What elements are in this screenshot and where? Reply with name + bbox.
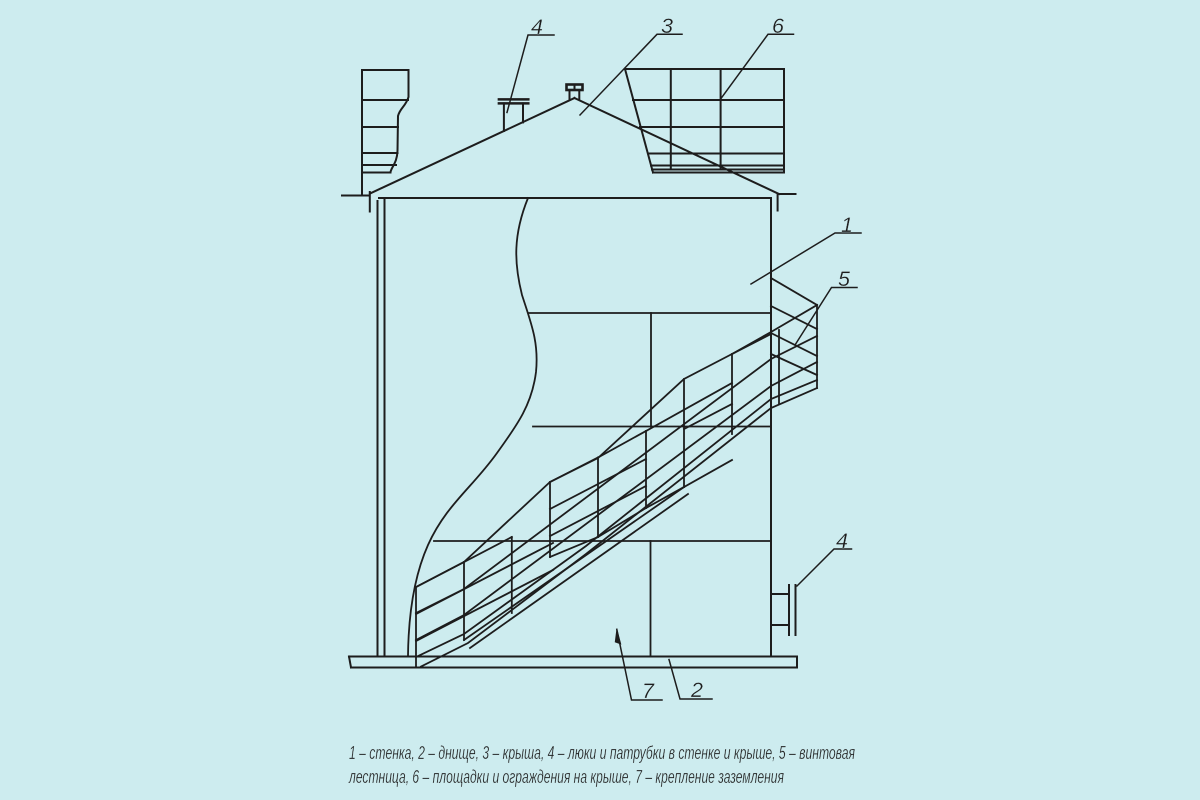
svg-text:7: 7 [642, 679, 655, 703]
svg-text:5: 5 [838, 267, 851, 291]
svg-text:4: 4 [836, 529, 848, 553]
svg-text:3: 3 [661, 14, 673, 38]
svg-text:6: 6 [772, 14, 784, 38]
svg-text:1: 1 [841, 213, 853, 237]
svg-text:4: 4 [531, 15, 543, 39]
svg-text:2: 2 [690, 678, 703, 702]
svg-text:1 – стенка, 2 – днище, 3 – кры: 1 – стенка, 2 – днище, 3 – крыша, 4 – лю… [349, 743, 855, 763]
svg-text:лестница, 6 – площадки и ограж: лестница, 6 – площадки и ограждения на к… [348, 767, 784, 787]
